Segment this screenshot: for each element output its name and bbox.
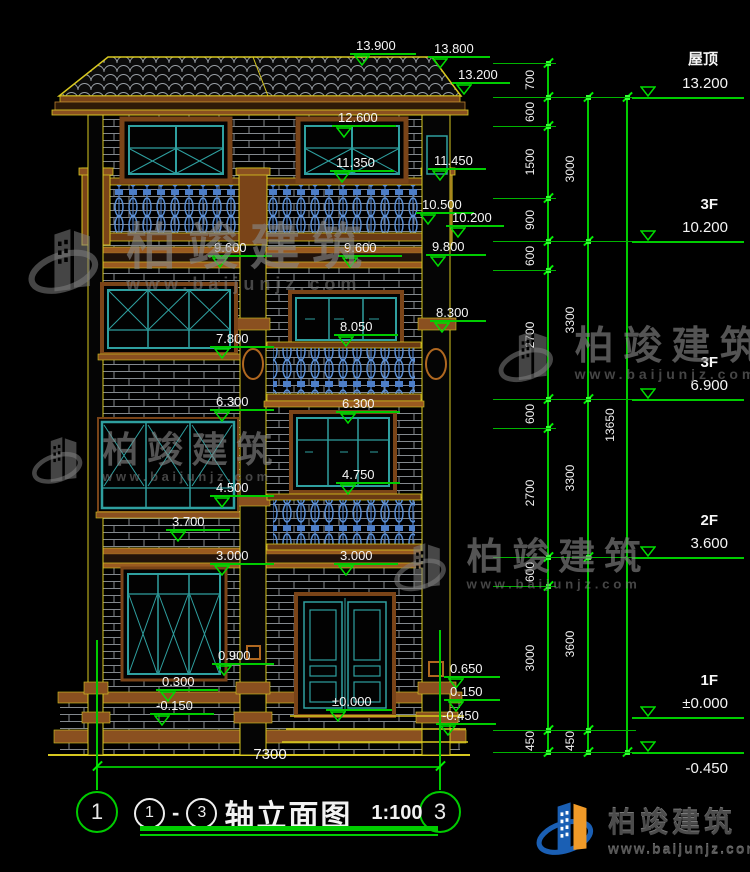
elevation-mark: 3.000 xyxy=(210,545,274,565)
elevation-mark: 6.300 xyxy=(336,393,400,413)
elevation-mark: -0.150 xyxy=(150,695,214,715)
dim-extension xyxy=(493,730,636,731)
title-dash: - xyxy=(172,800,179,826)
dim-segment-value: 600 xyxy=(523,245,537,265)
dim-segment-value: 700 xyxy=(523,70,537,90)
balcony-1f-right xyxy=(267,494,421,550)
dim-segment-value: 600 xyxy=(523,403,537,423)
overall-width-value: 7300 xyxy=(238,746,302,763)
dim-segment-value: 450 xyxy=(563,731,577,751)
elevation-mark: 11.350 xyxy=(330,152,394,172)
dim-extension xyxy=(493,241,636,242)
brand-name: 柏竣建筑 xyxy=(608,801,750,841)
brand-logo-icon xyxy=(536,796,598,862)
dim-overall-value: 13650 xyxy=(603,408,617,441)
elevation-mark: 12.600 xyxy=(332,107,396,127)
title-underline-thin xyxy=(140,834,438,836)
roof xyxy=(52,57,468,115)
axis-bubble-1: 1 xyxy=(76,791,118,833)
title-axis-end: 3 xyxy=(186,798,217,829)
dim-segment-value: 600 xyxy=(523,101,537,121)
elevation-mark: 3.700 xyxy=(166,511,230,531)
elevation-mark: 0.650 xyxy=(444,658,500,678)
dim-segment-value: 2700 xyxy=(523,479,537,506)
title-scale: 1:100 xyxy=(371,802,422,825)
dim-extension xyxy=(493,97,636,98)
dim-extension xyxy=(493,63,556,64)
elevation-mark: 0.150 xyxy=(444,681,500,701)
elevation-mark: 11.450 xyxy=(428,150,486,170)
elevation-mark: 13.900 xyxy=(350,35,416,55)
dim-segment-value: 3300 xyxy=(563,307,577,334)
elevation-mark: 9.600 xyxy=(338,237,402,257)
brand-site: www.baijunjz.com xyxy=(608,841,750,857)
elevation-mark: 0.900 xyxy=(212,645,274,665)
dim-extension xyxy=(493,198,556,199)
title-axis-start: 1 xyxy=(134,798,165,829)
pilaster-center xyxy=(234,245,272,755)
dim-segment-value: 2700 xyxy=(523,321,537,348)
elevation-mark: 13.800 xyxy=(428,38,490,58)
dim-segment-value: 900 xyxy=(523,209,537,229)
window-1f-left xyxy=(122,568,226,680)
dim-extension xyxy=(493,270,556,271)
dim-segment-value: 3600 xyxy=(563,630,577,657)
dim-overall-line xyxy=(626,97,628,752)
dim-extension xyxy=(493,428,556,429)
elevation-mark: 9.800 xyxy=(426,236,486,256)
elevation-mark: ±0.000 xyxy=(326,691,392,711)
elevation-mark: 4.500 xyxy=(210,477,274,497)
dim-segment-value: 600 xyxy=(523,561,537,581)
elevation-mark: -0.450 xyxy=(436,705,496,725)
dim-segment-value: 3000 xyxy=(563,156,577,183)
elevation-mark: 7.800 xyxy=(210,328,274,348)
elevation-mark: 8.050 xyxy=(334,316,398,336)
elevation-mark: 0.300 xyxy=(156,671,218,691)
elevation-mark: 8.300 xyxy=(430,302,486,322)
dim-segment-value: 450 xyxy=(523,731,537,751)
drawing-canvas: 13.90013.80013.20012.60011.35011.45010.5… xyxy=(0,0,750,872)
dim-segment-value: 3000 xyxy=(523,645,537,672)
elevation-mark: 6.300 xyxy=(210,391,274,411)
dim-chain-line xyxy=(587,97,589,752)
dim-chain-line xyxy=(547,63,549,752)
elevation-mark: 9.600 xyxy=(208,237,272,257)
dim-extension xyxy=(493,586,556,587)
elevation-mark: 13.200 xyxy=(452,64,510,84)
elevation-mark: 3.000 xyxy=(334,545,398,565)
dim-segment-value: 1500 xyxy=(523,149,537,176)
overall-width-dimline xyxy=(97,766,440,768)
dim-extension xyxy=(493,557,636,558)
dim-extension xyxy=(493,126,556,127)
dim-extension xyxy=(493,399,636,400)
elevation-mark: 4.750 xyxy=(336,464,400,484)
title-underline-thick xyxy=(140,826,438,831)
elevation-mark: 10.200 xyxy=(446,207,504,227)
brand-logo: 柏竣建筑 www.baijunjz.com xyxy=(536,796,750,862)
dim-segment-value: 3300 xyxy=(563,465,577,492)
window-3f-left xyxy=(122,119,230,181)
dim-extension xyxy=(493,752,636,753)
